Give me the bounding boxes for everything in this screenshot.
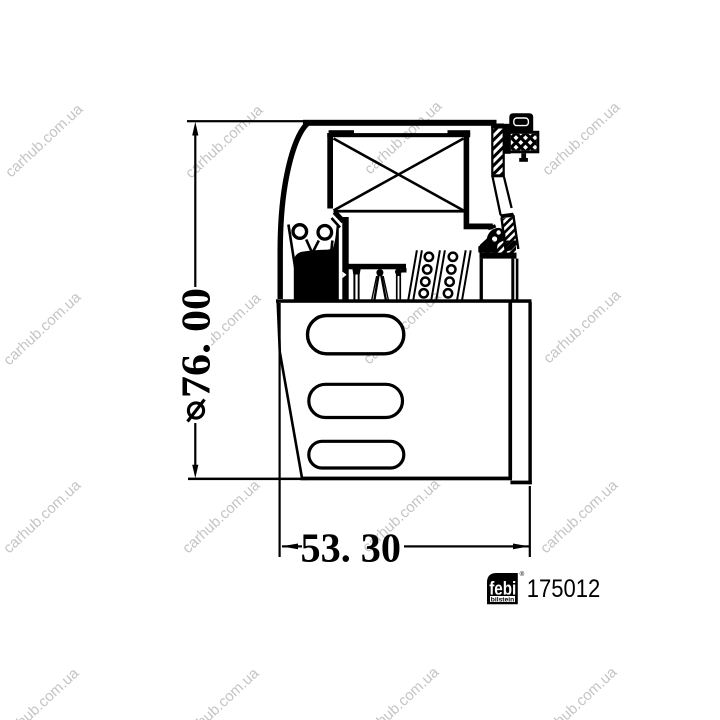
svg-text:bilstein: bilstein bbox=[491, 596, 514, 603]
svg-text:53. 30: 53. 30 bbox=[301, 525, 402, 571]
svg-text:®: ® bbox=[520, 570, 525, 578]
svg-text:76. 00: 76. 00 bbox=[173, 288, 219, 398]
svg-text:175012: 175012 bbox=[527, 575, 601, 603]
